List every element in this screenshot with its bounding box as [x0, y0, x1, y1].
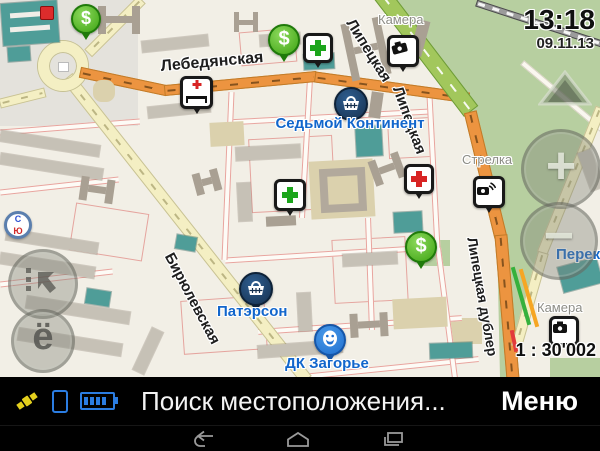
north-arrow-button[interactable]	[538, 70, 592, 106]
compass-south-label: Ю	[13, 226, 22, 236]
recents-button[interactable]	[373, 427, 413, 450]
green-cross-icon	[310, 40, 326, 56]
roundabout-center	[58, 62, 69, 72]
pin-tail	[279, 54, 289, 62]
basket-glyph	[340, 94, 362, 112]
plus-icon: +	[524, 132, 598, 200]
camera-poi-icon[interactable]	[387, 35, 419, 67]
back-button[interactable]	[183, 427, 223, 450]
pin-tail	[81, 32, 91, 40]
building	[192, 168, 223, 196]
phone-icon	[52, 390, 68, 413]
mask-glyph	[321, 330, 339, 348]
camera-glyph	[388, 38, 411, 59]
hospital-poi-icon[interactable]	[180, 76, 213, 109]
building	[0, 130, 100, 157]
pharmacy-poi-icon[interactable]	[274, 179, 306, 211]
pin-tail	[285, 208, 295, 216]
dollar-glyph: $	[415, 235, 426, 257]
dollar-glyph: $	[278, 28, 289, 50]
building	[133, 328, 163, 375]
atm-poi-icon[interactable]: $	[71, 4, 101, 34]
road-minor	[221, 92, 234, 260]
speed-camera-poi-icon[interactable]	[473, 176, 505, 208]
building	[93, 80, 115, 102]
building	[142, 35, 209, 53]
pin-tail	[398, 64, 408, 72]
track-route-icon	[24, 264, 60, 300]
pin-tail	[416, 261, 426, 269]
poi-label: Патэрсон	[217, 303, 287, 320]
building	[175, 234, 197, 251]
small-poi-icon[interactable]	[40, 6, 54, 20]
supermarket-poi-icon[interactable]	[239, 272, 273, 306]
atm-poi-icon[interactable]: $	[268, 24, 300, 56]
dollar-glyph: $	[81, 8, 91, 28]
building	[234, 12, 258, 32]
pin-tail	[313, 60, 323, 68]
building	[349, 312, 388, 338]
android-nav-bar	[0, 425, 600, 451]
compass-indicator[interactable]: С Ю	[4, 211, 32, 239]
camera-glyph	[552, 321, 570, 335]
street-label: Лебедянская	[160, 49, 264, 76]
building	[319, 167, 367, 213]
back-icon	[190, 430, 216, 448]
minus-icon: −	[523, 205, 595, 267]
building	[209, 121, 244, 147]
bed-icon	[186, 96, 207, 99]
building	[392, 297, 447, 330]
red-cross-icon	[411, 171, 427, 187]
pin-tail	[484, 205, 494, 213]
camera-label: Камера	[378, 12, 423, 27]
events-icon: ё	[14, 312, 72, 362]
building	[393, 211, 422, 232]
clock-date: 09.11.13	[536, 35, 594, 52]
home-button[interactable]	[278, 427, 318, 450]
building	[78, 176, 115, 204]
zoom-out-button[interactable]: −	[520, 202, 598, 280]
poi-label: Седьмой Континент	[275, 115, 425, 132]
courtyard-outline	[69, 203, 150, 262]
building	[266, 215, 296, 227]
map-scale: 1 : 30'002	[516, 340, 596, 361]
building	[297, 293, 312, 332]
green-cross-icon	[282, 187, 298, 203]
theater-poi-icon[interactable]	[314, 324, 346, 356]
satellite-icon	[14, 390, 40, 412]
pharmacy-poi-icon[interactable]	[303, 33, 333, 63]
camera-label: Камера	[537, 300, 582, 315]
bed-leg	[205, 98, 207, 103]
navigator-screen: Лебедянская Бирюлевская Липецкая Липецка…	[0, 0, 600, 450]
building	[8, 46, 31, 62]
battery-icon	[80, 392, 115, 410]
menu-button[interactable]: Меню	[501, 386, 578, 417]
building	[98, 6, 140, 34]
red-cross-icon	[192, 80, 201, 89]
status-message: Поиск местоположения...	[141, 386, 489, 417]
speed-camera-glyph	[476, 180, 496, 198]
poi-label: ДК Загорье	[267, 355, 387, 372]
pin-tail	[192, 106, 202, 114]
home-icon	[284, 430, 312, 448]
pin-tail	[414, 191, 424, 199]
compass-north-label: С	[15, 214, 22, 224]
building	[430, 342, 472, 358]
building	[85, 288, 111, 307]
basket-glyph	[245, 279, 267, 297]
north-arrow-icon	[538, 70, 592, 106]
clock-time: 13:18	[523, 4, 595, 36]
medical-poi-icon[interactable]	[404, 164, 434, 194]
events-button[interactable]: ё	[11, 309, 75, 373]
recents-icon	[380, 430, 406, 448]
atm-poi-icon[interactable]: $	[405, 231, 437, 263]
bed-leg	[186, 98, 188, 103]
strelka-label: Стрелка	[462, 152, 512, 167]
status-bar: Поиск местоположения... Меню	[0, 377, 600, 425]
building	[237, 183, 252, 222]
zoom-in-button[interactable]: +	[521, 129, 600, 209]
map-canvas[interactable]: Лебедянская Бирюлевская Липецкая Липецка…	[0, 0, 600, 377]
